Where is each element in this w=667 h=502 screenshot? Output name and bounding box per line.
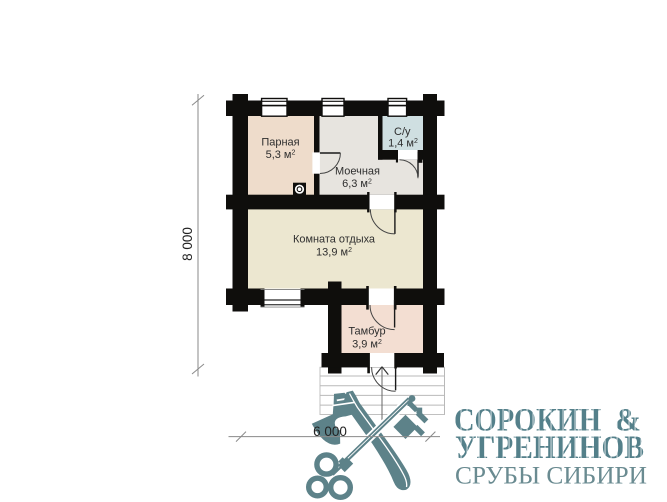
svg-text:Моечная: Моечная: [335, 165, 380, 177]
svg-text:1,4 м2: 1,4 м2: [388, 138, 418, 150]
svg-text:8 000: 8 000: [180, 227, 195, 261]
svg-text:5,3 м2: 5,3 м2: [266, 149, 296, 161]
svg-text:СРУБЫ СИБИРИ: СРУБЫ СИБИРИ: [455, 460, 647, 489]
svg-text:3,9 м2: 3,9 м2: [352, 339, 382, 351]
svg-text:Комната отдыха: Комната отдыха: [293, 234, 376, 246]
svg-text:С/у: С/у: [394, 126, 411, 138]
svg-text:Тамбур: Тамбур: [348, 326, 385, 338]
svg-text:Парная: Парная: [261, 136, 299, 148]
svg-text:6,3 м2: 6,3 м2: [342, 178, 372, 190]
svg-text:6 000: 6 000: [313, 424, 347, 439]
svg-text:13,9 м2: 13,9 м2: [316, 247, 352, 259]
